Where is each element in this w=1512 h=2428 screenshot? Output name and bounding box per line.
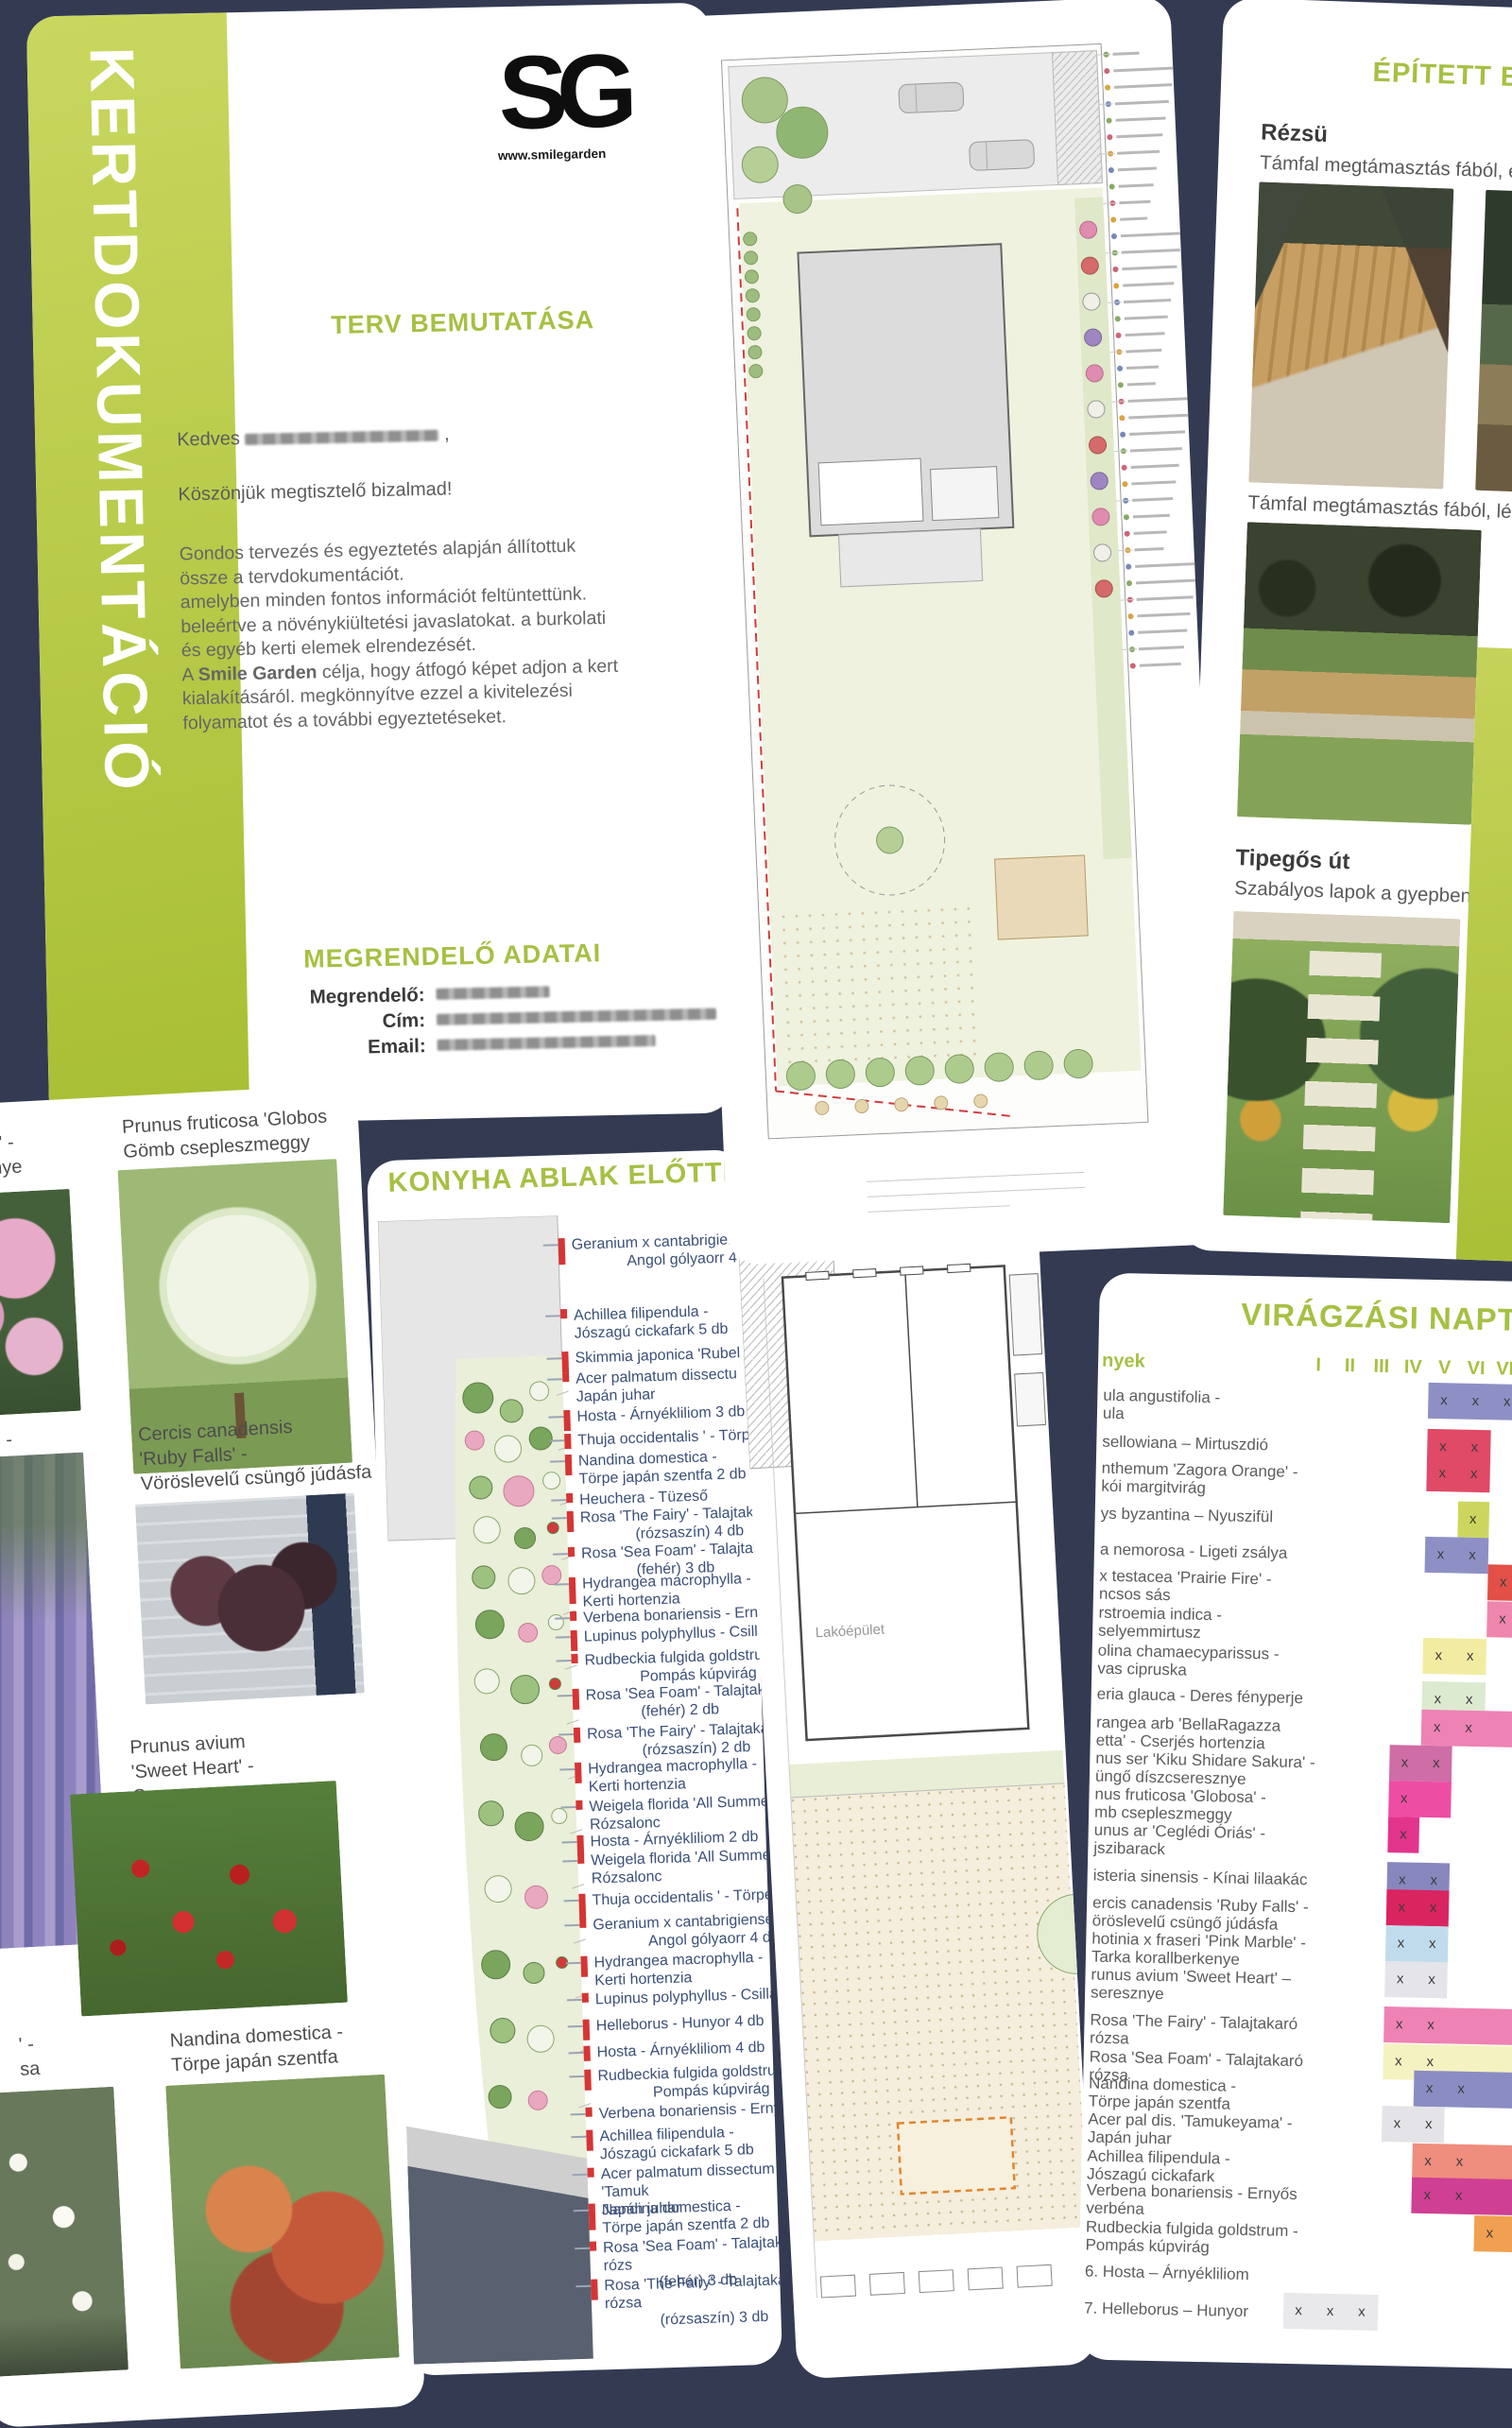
ruby-falls-photo — [135, 1493, 365, 1705]
red-marker — [567, 1511, 575, 1532]
red-marker — [586, 2130, 593, 2151]
bloom-x-mark: x — [1417, 1936, 1449, 1953]
customer-data-heading: MEGRENDELŐ ADATAI — [263, 938, 642, 974]
red-marker — [560, 1309, 567, 1318]
calendar-plant-name: a nemorosa - Ligeti zsálya — [1100, 1541, 1322, 1563]
plan-title: KONYHA ABLAK ELŐTTI N — [387, 1157, 761, 1199]
cover-page: KERTDOKUMENTÁCIÓ SG www.smilegarden TERV… — [26, 3, 733, 1128]
calendar-plant-name: ula angustifolia -ula — [1103, 1386, 1326, 1427]
bloom-x-mark: x — [1416, 1972, 1448, 1989]
greeting-comma: , — [444, 423, 450, 444]
calendar-plant-name: hotinia x fraseri 'Pink Marble' -Tarka k… — [1091, 1930, 1314, 1971]
planter-row — [820, 2264, 1052, 2298]
stepping-path-photo — [1223, 911, 1460, 1223]
red-marker — [566, 1493, 573, 1503]
red-marker — [571, 1630, 578, 1651]
bloom-x-mark: x — [1428, 1392, 1460, 1409]
bloom-x-mark: x — [1459, 1393, 1491, 1410]
field-label: Email: — [198, 1035, 425, 1062]
calendar-plant-name: eria glauca - Deres fényperje — [1097, 1685, 1319, 1708]
calendar-plant-name: isteria sinensis - Kínai lilaakác — [1093, 1867, 1315, 1889]
kitchen-window-plan-page: KONYHA ABLAK ELŐTTI N Geranium x cantabr… — [367, 1149, 782, 2376]
calendar-plant-name: runus avium 'Sweet Heart' –seresznye — [1091, 1966, 1314, 2006]
plant-name: is - — [0, 1427, 13, 1453]
plant-name: Prunus fruticosa 'GlobosGömb csepleszmeg… — [121, 1105, 329, 1164]
red-marker — [565, 1455, 573, 1475]
bloom-x-mark: x — [1473, 2225, 1505, 2242]
flowering-calendar-page: VIRÁGZÁSI NAPTÁR nyek IIIIIIIVVVIVII ula… — [1077, 1273, 1512, 2370]
cherries-photo — [70, 1781, 348, 2016]
plant-annotation: Rudbeckia fulgida goldstrum -Pompás kúpv… — [597, 2060, 782, 2103]
plant-annotation: Helleborus - Hunyor 4 db — [595, 2010, 782, 2035]
calendar-plant-name: unus ar 'Ceglédi Óriás' -jszibarack — [1093, 1821, 1316, 1862]
white-flowers-photo — [0, 2087, 129, 2377]
red-marker — [563, 1410, 571, 1431]
calendar-plant-name: rstroemia indica -selyemmirtusz — [1098, 1604, 1321, 1644]
bloom-x-mark: x — [1426, 1465, 1458, 1482]
month-header: I — [1302, 1354, 1334, 1377]
bloom-x-mark: x — [1314, 2303, 1346, 2320]
retaining-wall-photo — [1248, 181, 1453, 489]
red-marker — [564, 1434, 571, 1449]
section-subtitle: Támfal megtámasztás fából, elé — [1260, 152, 1512, 184]
nandina-photo — [165, 2075, 399, 2369]
bloom-x-mark: x — [1443, 2187, 1475, 2204]
pink-blossom-photo — [0, 1189, 81, 1419]
month-header: V — [1428, 1357, 1460, 1380]
plant-name: Cercis canadensis'Ruby Falls' -Vörösleve… — [137, 1411, 371, 1497]
built-elements-title: ÉPÍTETT E — [1372, 58, 1512, 94]
bloom-x-mark: x — [1384, 1971, 1417, 1988]
plant-annotation: Rosa 'The Fairy' - Talajtakaró rózsa(róz… — [604, 2270, 782, 2331]
plant-annotation: Geranium x cantabrigiense -Angol gólyaor… — [593, 1909, 782, 1952]
plant-annotation: Weigela florida 'All Summer ReRózsalonc — [591, 1845, 782, 1887]
bloom-x-mark: x — [1491, 1393, 1512, 1410]
bloom-x-mark: x — [1424, 1546, 1456, 1563]
bloom-x-mark: x — [1443, 2153, 1475, 2170]
bloom-x-mark: x — [1413, 2116, 1445, 2133]
red-marker — [584, 2070, 592, 2091]
calendar-rows: ula angustifolia -ulaxxxsellowiana – Mir… — [1100, 1273, 1512, 1283]
garden-plan-drawing — [674, 0, 1224, 1266]
bloom-x-mark: x — [1427, 1438, 1459, 1455]
red-marker — [561, 1352, 569, 1372]
bloom-x-mark: x — [1414, 2080, 1446, 2097]
bloom-x-mark: x — [1458, 1466, 1490, 1483]
plant-annotation: Thuja occidentalis ' - Törpe osz — [592, 1885, 782, 1909]
garden-plan-page — [674, 0, 1224, 1266]
built-elements-page: ÉPÍTETT E Rézsü Támfal megtámasztás fábó… — [1180, 0, 1512, 1264]
red-marker — [577, 1854, 584, 1864]
red-marker — [589, 2204, 596, 2230]
red-marker — [568, 1547, 575, 1557]
planting-plan-drawing — [378, 1215, 599, 2365]
calendar-plant-name: x testacea 'Prairie Fire' -ncsos sás — [1099, 1567, 1322, 1608]
orange-dashed-area — [898, 2117, 1015, 2194]
calendar-title: VIRÁGZÁSI NAPTÁR — [1241, 1297, 1512, 1339]
red-marker — [562, 1372, 569, 1382]
bloom-x-mark: x — [1486, 1610, 1512, 1627]
field-label: Megrendelő: — [198, 984, 424, 1011]
greeting-word: Kedves — [177, 428, 240, 450]
section-heading: Tipegős út — [1235, 845, 1350, 875]
calendar-plant-name: nus ser 'Kiku Shidare Sakura' -üngő dísz… — [1095, 1749, 1318, 1790]
red-marker — [575, 1763, 582, 1783]
bloom-x-mark: x — [1454, 1648, 1486, 1665]
red-marker — [573, 1689, 580, 1710]
bloom-x-mark: x — [1421, 1719, 1453, 1736]
calendar-plant-name: rangea arb 'BellaRagazzaetta' - Cserjés … — [1096, 1713, 1319, 1754]
bloom-x-mark: x — [1383, 2053, 1415, 2070]
red-marker — [576, 1800, 582, 1810]
section-subtitle: Szabályos lapok a gyepben — [1234, 877, 1471, 908]
month-header: IV — [1397, 1356, 1429, 1379]
red-marker — [574, 1728, 580, 1743]
calendar-plant-name: Verbena bonariensis - Ernyősverbéna — [1086, 2180, 1309, 2221]
red-marker — [591, 2280, 598, 2300]
bloom-x-mark: x — [1386, 1871, 1418, 1888]
calendar-plant-name: nthemum 'Zagora Orange' -kói margitvirág — [1101, 1459, 1324, 1500]
calendar-plant-name: Rosa 'The Fairy' - Talajtakaró rózsa — [1090, 2011, 1313, 2052]
calendar-plant-name: Rudbeckia fulgida goldstrum -Pompás kúpv… — [1085, 2217, 1308, 2258]
bloom-x-mark: x — [1282, 2302, 1314, 2319]
bloom-x-mark: x — [1411, 2187, 1443, 2204]
plant-annotation: Achillea filipendula -Jószagú cickafark … — [599, 2121, 782, 2163]
bloom-x-mark: x — [1381, 2115, 1413, 2132]
terraced-garden-photo — [1237, 522, 1482, 824]
bloom-x-mark: x — [1414, 2054, 1446, 2071]
bloom-x-mark: x — [1383, 2016, 1416, 2033]
red-marker — [583, 2020, 591, 2041]
bloom-x-mark: x — [1487, 1574, 1512, 1591]
plant-annotation: Hydrangea macrophylla -Kerti hortenzia — [588, 1753, 782, 1796]
plant-annotation: Hydrangea macrophylla -Kerti hortenzia — [593, 1947, 782, 1989]
section-subtitle: Támfal megtámasztás fából, lépc — [1247, 491, 1512, 524]
detail-plan-drawing: Lakóépület — [737, 1217, 1097, 2380]
red-marker — [558, 1238, 566, 1265]
calendar-plant-name: 6. Hosta – Árnyékliliom — [1085, 2262, 1307, 2284]
month-header-row: IIIIIIIVVVIVII — [1100, 1273, 1512, 1283]
red-marker — [583, 2046, 590, 2061]
calendar-plant-name: sellowiana – Mirtuszdió — [1102, 1433, 1324, 1455]
bloom-x-mark: x — [1388, 1790, 1420, 1807]
redacted-value — [438, 1035, 656, 1051]
bloom-x-mark: x — [1415, 2017, 1447, 2034]
bloom-x-mark: x — [1417, 1872, 1450, 1889]
plant-name: Nandina domestica -Törpe japán szentfa — [169, 2020, 345, 2078]
bloom-x-mark: x — [1417, 1900, 1450, 1917]
intro-paragraph: Gondos tervezés és egyeztetés alapján ál… — [179, 534, 619, 736]
retaining-wall-photo-2 — [1475, 190, 1512, 495]
bloom-x-mark: x — [1458, 1439, 1490, 1456]
redacted-value — [436, 986, 549, 1000]
bloom-x-mark: x — [1412, 2153, 1444, 2170]
bloom-x-mark: x — [1456, 1547, 1488, 1564]
red-marker — [569, 1577, 576, 1604]
field-label: Cím: — [198, 1009, 425, 1037]
calendar-plant-name: ercis canadensis 'Ruby Falls' -öröslevel… — [1092, 1894, 1315, 1935]
bloom-x-mark: x — [1422, 1647, 1454, 1664]
red-marker — [582, 1993, 589, 2003]
red-marker — [587, 2168, 593, 2178]
red-marker — [585, 2108, 592, 2117]
bloom-x-mark: x — [1385, 1899, 1417, 1916]
bloom-x-mark: x — [1452, 1719, 1485, 1736]
plant-annotation: Nandina domestica -Törpe japán szentfa 2… — [602, 2195, 782, 2237]
red-marker — [576, 1835, 584, 1856]
bloom-x-mark: x — [1388, 1754, 1420, 1771]
thanks-line: Köszönjük megtisztelő bizalmad! — [178, 478, 453, 506]
calendar-plant-name: Acer pal dis. 'Tamukeyama' -Japán juhar — [1088, 2110, 1311, 2151]
calendar-plant-name: ys byzantina – Nyuszifül — [1101, 1505, 1323, 1527]
logo-website: www.smilegarden — [498, 146, 607, 163]
greeting-line: Kedves , — [177, 423, 450, 451]
bloom-x-mark: x — [1387, 1826, 1419, 1843]
calendar-plant-name: nus fruticosa 'Globosa' -mb csepleszmegg… — [1094, 1785, 1317, 1826]
plant-catalogue-page: ura' -sznyePrunus fruticosa 'GlobosGömb … — [0, 1084, 425, 2428]
red-marker — [578, 1894, 586, 1920]
calendar-plant-name: olina chamaecyparissus -vas cipruska — [1097, 1642, 1320, 1682]
bloom-x-mark: x — [1346, 2303, 1378, 2320]
calendar-plant-name: 7. Helleborus – Hunyor — [1084, 2299, 1306, 2321]
bloom-x-mark: x — [1421, 1691, 1453, 1708]
red-marker — [590, 2242, 596, 2251]
red-marker — [570, 1611, 576, 1621]
month-header: III — [1366, 1355, 1398, 1378]
smile-garden-logo: SG — [497, 30, 627, 153]
pergola — [995, 855, 1089, 939]
bloom-x-mark: x — [1384, 1935, 1417, 1952]
month-header: VII — [1491, 1358, 1512, 1381]
redacted-value — [437, 1008, 716, 1025]
plant-annotation: Rosa 'Sea Foam' - Talajtakaró(fehér) 2 d… — [585, 1679, 782, 1722]
page-title: TERV BEMUTATÁSA — [306, 305, 619, 341]
red-marker — [571, 1654, 577, 1663]
plant-annotation: Hosta - Árnyékliliom 4 db — [596, 2037, 782, 2061]
bloom-x-mark: x — [1420, 1755, 1452, 1772]
plants-column-header: nyek — [1102, 1351, 1145, 1373]
bloom-x-mark: x — [1445, 2080, 1477, 2097]
calendar-plant-name: Nandina domestica -Törpe japán szentfa — [1089, 2075, 1312, 2115]
section-heading: Rézsü — [1261, 120, 1329, 148]
month-header: II — [1333, 1355, 1366, 1378]
bloom-x-mark: x — [1453, 1692, 1486, 1709]
redacted-name — [245, 429, 438, 444]
month-header: VI — [1460, 1358, 1492, 1381]
bloom-x-mark: x — [1457, 1511, 1489, 1528]
red-marker — [579, 1919, 586, 1928]
plant-name: ura' -sznye — [0, 1130, 23, 1182]
red-marker — [580, 1956, 588, 1977]
plant-name: ' -sa — [18, 2032, 41, 2082]
detail-plan-page: Lakóépület — [737, 1217, 1097, 2380]
